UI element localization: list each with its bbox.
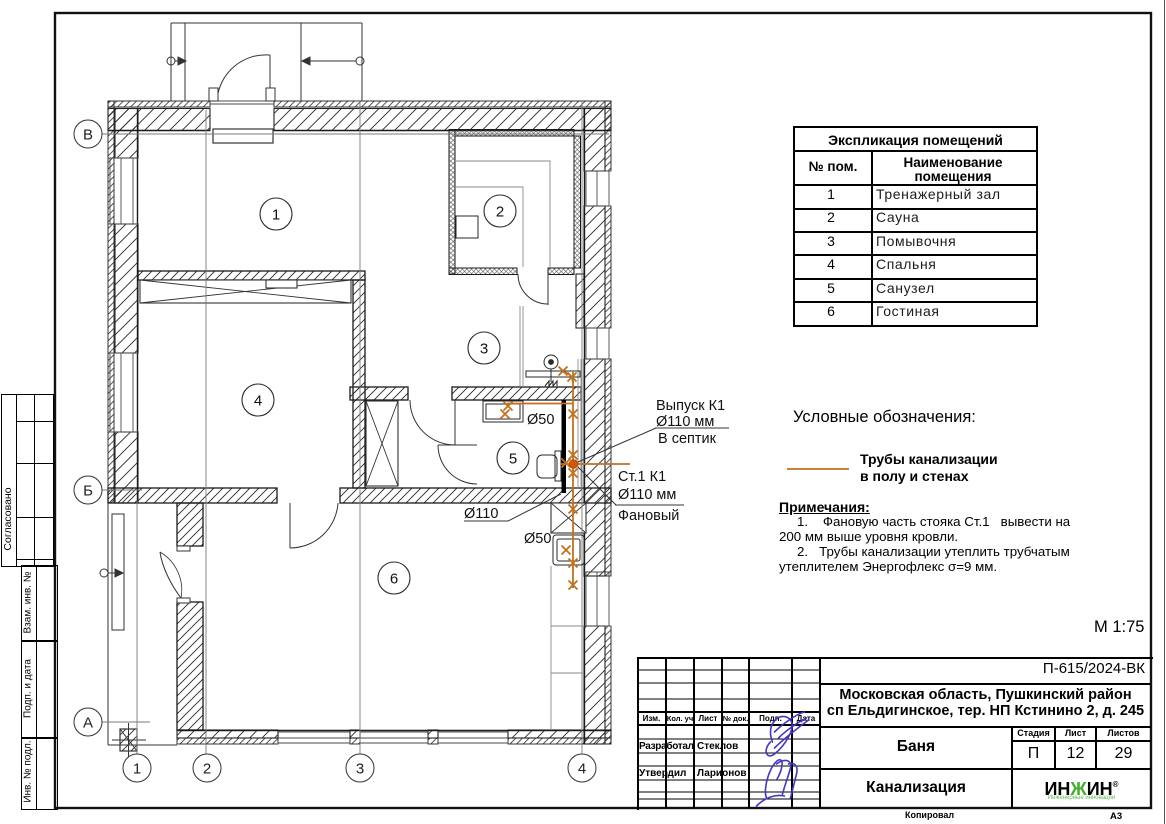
svg-text:Ø110: Ø110 — [464, 506, 498, 522]
svg-text:В септик: В септик — [658, 431, 717, 447]
svg-text:В: В — [83, 127, 93, 144]
svg-text:1: 1 — [272, 207, 280, 224]
svg-text:Ø110 мм: Ø110 мм — [618, 487, 676, 503]
svg-text:4: 4 — [578, 761, 586, 778]
svg-text:А: А — [83, 715, 93, 732]
svg-text:4: 4 — [254, 393, 262, 410]
svg-text:6: 6 — [390, 571, 398, 588]
svg-text:3: 3 — [356, 761, 364, 778]
svg-text:Ø110 мм: Ø110 мм — [656, 414, 714, 430]
svg-text:2: 2 — [203, 761, 211, 778]
svg-text:Фановый: Фановый — [618, 508, 679, 524]
svg-text:Ø50: Ø50 — [527, 412, 554, 428]
svg-text:2: 2 — [496, 204, 504, 221]
svg-text:1: 1 — [133, 761, 141, 778]
svg-text:5: 5 — [509, 451, 517, 468]
svg-text:Ст.1 К1: Ст.1 К1 — [618, 469, 666, 485]
svg-text:3: 3 — [480, 341, 488, 358]
svg-text:Выпуск К1: Выпуск К1 — [656, 398, 725, 414]
svg-text:Б: Б — [83, 483, 93, 500]
svg-text:Ø50: Ø50 — [524, 531, 551, 547]
